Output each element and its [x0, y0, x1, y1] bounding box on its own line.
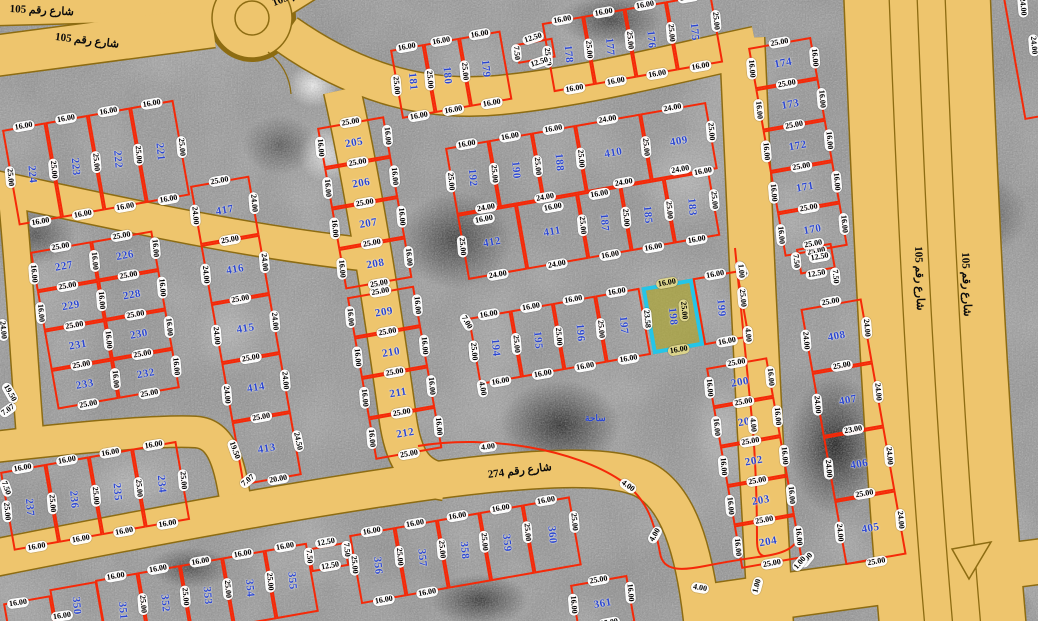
dimension-label: 16.00 [809, 46, 821, 69]
dimension-label: 16.00 [163, 316, 175, 339]
dimension-label: 25.00 [595, 318, 607, 341]
dimension-label: 25.00 [348, 553, 360, 576]
map-canvas[interactable]: شارع رقم 105 شارع رقم 105 شارع رقم 105 ش… [0, 0, 1038, 621]
dimension-label: 16.00 [170, 355, 182, 378]
parcel-number: 360 [545, 525, 559, 544]
dimension-label: 25.00 [1, 500, 13, 523]
dimension-label: 16.00 [772, 405, 784, 428]
dimension-label: 16.00 [149, 237, 161, 260]
dimension-label: 16.00 [793, 525, 805, 548]
dimension-label: 24.00 [1017, 0, 1029, 18]
dimension-label: 25.00 [624, 29, 636, 52]
parcel-number: 352 [158, 594, 172, 613]
dimension-label: 16.00 [816, 88, 828, 111]
parcel-number: 197 [616, 316, 630, 335]
dimension-label: 25.00 [132, 143, 144, 166]
dimension-label: 25.00 [510, 333, 522, 356]
dimension-label: 25.00 [488, 162, 500, 185]
parcel-number: 183 [685, 198, 699, 217]
dimension-label: 16.00 [426, 375, 438, 398]
dimension-label: 16.00 [778, 444, 790, 467]
parcel-number: 178 [562, 45, 576, 64]
dimension-label: 16.00 [28, 262, 40, 285]
dimension-label: 16.00 [336, 257, 348, 280]
parcel-number: 175 [688, 22, 702, 41]
dimension-label: 16.00 [352, 346, 364, 369]
dimension-label: 25.00 [394, 545, 406, 568]
dimension-label: 25.00 [532, 155, 544, 178]
dimension-label: 16.00 [359, 386, 371, 409]
dimension-label: 24.00 [258, 251, 270, 274]
dimension-label: 16.00 [315, 136, 327, 159]
parcel-number: 198 [666, 307, 680, 326]
dimension-label: 25.00 [90, 484, 102, 507]
parcel-number: 354 [243, 579, 257, 598]
parcel-number: 355 [285, 571, 299, 590]
dimension-label: 16.00 [831, 170, 843, 193]
dimension-label: 25.00 [222, 578, 234, 601]
dimension-label: 25.00 [678, 299, 690, 322]
dimension-label: 16.00 [568, 593, 580, 616]
dimension-label: 25.00 [665, 21, 677, 44]
parcel-number: 359 [500, 533, 514, 552]
dimension-label: 16.00 [366, 427, 378, 450]
dimension-label: 25.00 [176, 136, 188, 159]
dimension-label: 25.00 [583, 38, 595, 61]
dimension-label: 16.00 [50, 610, 73, 621]
dimension-label: 25.00 [705, 120, 717, 143]
dimension-label: 4.00 [742, 326, 754, 345]
parcel-number: 192 [466, 168, 480, 187]
parcel-number: 199 [714, 298, 728, 317]
dimension-label: 24.00 [269, 310, 281, 333]
dimension-label: 25.00 [177, 469, 189, 492]
dimension-label: 24.00 [811, 393, 823, 416]
dimension-label: 25.00 [708, 189, 720, 212]
dimension-label: 25.00 [46, 492, 58, 515]
dimension-label: 7.50 [790, 252, 802, 271]
dimension-label: 16.00 [768, 181, 780, 204]
parcel-number: 353 [200, 586, 214, 605]
dimension-label: 16.00 [96, 289, 108, 312]
dimension-label: 16.00 [156, 276, 168, 299]
dimension-label: 25.00 [179, 585, 191, 608]
dimension-label: 23.58 [641, 308, 653, 331]
dimension-label: 24.00 [823, 457, 835, 480]
dimension-label: 24.00 [861, 316, 873, 339]
dimension-label: 16.00 [89, 250, 101, 273]
dimension-label: 25.00 [640, 136, 652, 159]
dimension-label: 16.00 [403, 246, 415, 269]
dimension-label: 24.00 [200, 263, 212, 286]
dimension-label: 24.00 [800, 329, 812, 352]
dimension-label: 25.00 [710, 10, 722, 33]
parcel-number: 190 [509, 161, 523, 180]
dimension-label: 16.00 [746, 57, 758, 80]
dimension-label: 4.00 [747, 416, 759, 435]
dimension-label: 24.00 [189, 204, 201, 227]
street-label: شارع رقم 105 [959, 252, 974, 317]
parcel-number: 236 [67, 490, 81, 509]
dimension-label: 16.00 [329, 217, 341, 240]
dimension-label: 24.00 [279, 369, 291, 392]
dimension-label: 16.00 [411, 294, 423, 317]
dimension-label: 7.50 [303, 547, 315, 566]
dimension-label: 16.00 [396, 205, 408, 228]
dimension-label: 24.00 [1028, 34, 1038, 57]
dimension-label: 16.00 [322, 177, 334, 200]
dimension-label: 16.00 [753, 99, 765, 122]
dimension-label: 16.00 [102, 328, 114, 351]
dimension-label: 25.00 [445, 170, 457, 193]
dimension-label: 16.00 [389, 165, 401, 188]
dimension-label: 16.00 [717, 455, 729, 478]
dimension-label: 25.00 [620, 206, 632, 229]
dimension-label: 25.00 [568, 511, 580, 534]
parcel-number: 181 [406, 72, 420, 91]
parcel-number: 188 [552, 153, 566, 172]
dimension-label: 16.00 [344, 306, 356, 329]
dimension-label: 25.00 [424, 68, 436, 91]
parcel-number: 235 [110, 482, 124, 501]
parcel-number: 358 [457, 541, 471, 560]
dimension-label: 25.00 [577, 214, 589, 237]
parcel-number: 221 [153, 142, 167, 161]
dimension-label: 25.00 [575, 147, 587, 170]
dimension-label: 16.00 [760, 140, 772, 163]
dimension-label: 24.00 [872, 380, 884, 403]
dimension-label: 24.00 [895, 509, 907, 532]
dimension-label: 24.00 [221, 383, 233, 406]
parcel-number: 180 [441, 66, 455, 85]
parcel-number: 223 [68, 157, 82, 176]
dimension-label: 25.00 [436, 538, 448, 561]
dimension-label: 16.00 [732, 536, 744, 559]
dimension-label: 16.00 [704, 376, 716, 399]
parcel-number: 351 [115, 601, 129, 620]
dimension-label: 16.00 [418, 334, 430, 357]
parcel-number: 224 [25, 164, 39, 183]
dimension-label: 7.50 [511, 44, 523, 63]
parcel-number: 194 [488, 338, 502, 357]
dimension-label: 16.00 [433, 415, 445, 438]
dimension-label: 25.00 [663, 199, 675, 222]
dimension-label: 16.00 [838, 213, 850, 236]
dimension-label: 16.00 [710, 416, 722, 439]
dimension-label: 16.00 [382, 124, 394, 147]
dimension-label: 24.00 [883, 444, 895, 467]
parcel-number: 177 [603, 37, 617, 56]
dimension-label: 16.00 [35, 302, 47, 325]
dimension-label: 16.00 [109, 368, 121, 391]
street-label: شارع رقم 105 [912, 246, 927, 311]
parcel-number: 185 [641, 205, 655, 224]
parcel-number: 176 [644, 30, 658, 49]
dimension-label: 24.00 [248, 192, 260, 215]
dimension-label: 25.00 [456, 235, 468, 258]
parcel-number: 187 [598, 213, 612, 232]
dimension-label: 25.00 [48, 158, 60, 181]
dimension-label: 25.00 [553, 325, 565, 348]
dimension-label: 16.00 [724, 494, 736, 517]
parcel-number: 222 [111, 149, 125, 168]
dimension-label: 16.00 [624, 581, 636, 604]
dimension-label: 7.50 [830, 267, 842, 286]
dimension-label: 24.00 [210, 324, 222, 347]
dimension-label: 25.00 [478, 530, 490, 553]
dimension-label: 25.00 [459, 60, 471, 83]
dimension-label: 16.00 [823, 129, 835, 152]
parcel-number: 195 [531, 331, 545, 350]
dimension-label: 25.00 [521, 521, 533, 544]
parcel-number: 179 [479, 59, 493, 78]
dimension-label: 16.00 [765, 366, 777, 389]
dimension-label: 16.00 [775, 224, 787, 247]
dimension-label: 25.00 [133, 477, 145, 500]
dimension-label: 25.00 [737, 287, 749, 310]
dimension-label: 1.00 [735, 262, 747, 281]
parcel-number: 196 [573, 323, 587, 342]
dimension-label: 25.00 [90, 151, 102, 174]
parcel-number: 237 [23, 498, 37, 517]
area-label: ساحة [585, 413, 606, 424]
parcel-number: 356 [371, 556, 385, 575]
dimension-label: 25.00 [4, 166, 16, 189]
parcel-number: 234 [154, 475, 168, 494]
dimension-label: 25.00 [264, 570, 276, 593]
dimension-label: 16.00 [785, 484, 797, 507]
dimension-label: 24.00 [834, 521, 846, 544]
dimension-label: 25.00 [468, 340, 480, 363]
parcel-number: 357 [415, 548, 429, 567]
dimension-label: 25.00 [137, 593, 149, 616]
dimension-label: 25.00 [390, 74, 402, 97]
